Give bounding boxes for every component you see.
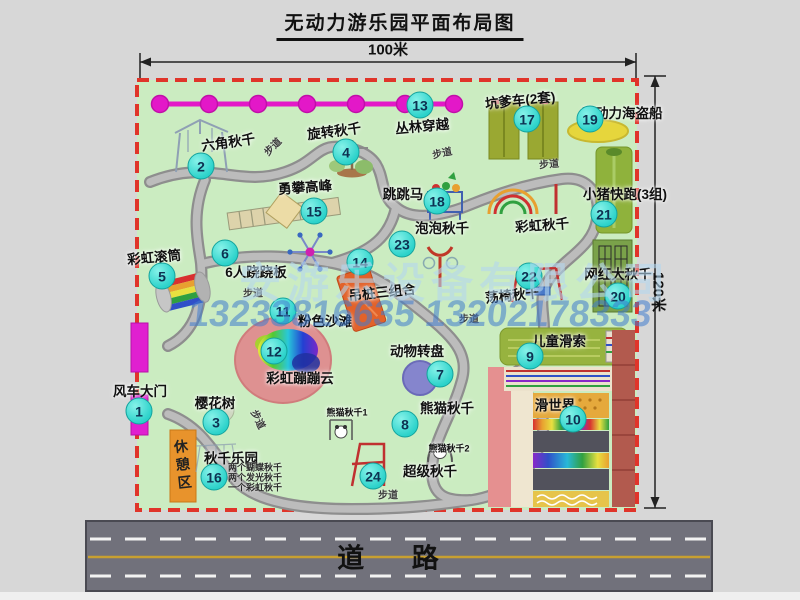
pig-run-icon — [596, 147, 632, 233]
park-plan-page: 无动力游乐园平面布局图 — [0, 0, 800, 600]
bottom-strip — [0, 592, 800, 600]
width-dimension-label: 100米 — [368, 39, 408, 60]
pirate-ship-icon — [568, 120, 628, 142]
animal-turntable-icon — [403, 361, 437, 395]
page-title: 无动力游乐园平面布局图 — [276, 8, 523, 41]
watermark-phone: 13233816635 13202178333 — [186, 293, 653, 335]
road-label: 道 路 — [337, 537, 459, 576]
